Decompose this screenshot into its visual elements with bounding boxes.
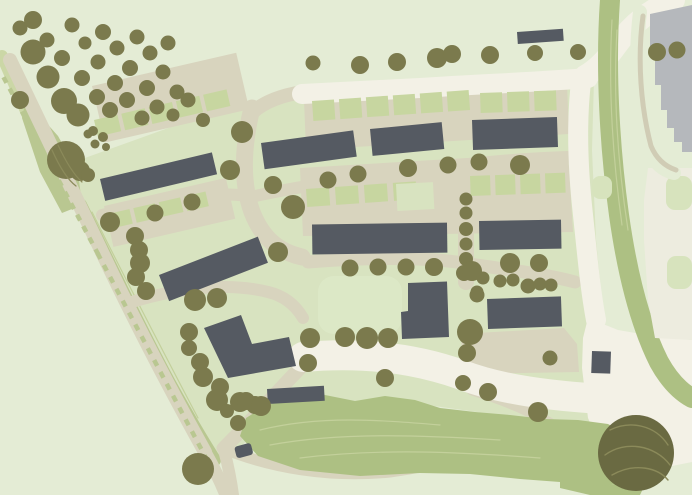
tree <box>196 113 210 127</box>
tree <box>545 279 558 292</box>
tree <box>91 55 106 70</box>
tree <box>425 258 443 276</box>
tree <box>494 275 507 288</box>
green-patches-shape <box>396 182 434 211</box>
tree <box>481 46 499 64</box>
tree <box>440 157 457 174</box>
tree <box>137 282 155 300</box>
tree <box>507 274 520 287</box>
tree <box>220 160 240 180</box>
tree <box>122 60 138 76</box>
tree <box>184 289 206 311</box>
garden-plot <box>366 96 389 117</box>
tree <box>527 45 543 61</box>
masterplan-site-map <box>0 0 692 495</box>
tree <box>182 453 214 485</box>
tree <box>356 327 378 349</box>
garden-plot <box>393 94 416 115</box>
tree <box>570 44 586 60</box>
garden-plot <box>480 92 503 113</box>
building-notched-center <box>401 282 449 340</box>
garden-plot <box>420 92 443 113</box>
green-patches-shape <box>592 176 612 199</box>
garden-plot <box>312 99 335 120</box>
garden-plot <box>447 90 470 111</box>
garden-plot <box>335 185 359 205</box>
tree <box>669 42 686 59</box>
tree <box>107 75 123 91</box>
tree <box>350 166 367 183</box>
tree <box>231 121 253 143</box>
tree <box>370 259 387 276</box>
tree <box>510 155 530 175</box>
tree <box>530 254 548 272</box>
tree <box>376 369 394 387</box>
tree <box>460 238 473 251</box>
building-row-n3 <box>472 117 558 150</box>
tree <box>220 404 234 418</box>
tree <box>268 242 288 262</box>
tree <box>351 56 369 74</box>
tree <box>161 36 176 51</box>
tree <box>521 279 536 294</box>
tree <box>477 272 490 285</box>
tree <box>299 354 317 372</box>
tree <box>378 328 398 348</box>
large-sketched-tree-se <box>598 415 674 491</box>
tree <box>89 89 105 105</box>
tree <box>156 65 171 80</box>
tree <box>84 130 93 139</box>
tree <box>24 11 42 29</box>
garden-plot <box>364 183 388 203</box>
tree <box>528 402 548 422</box>
tree <box>534 278 547 291</box>
tree <box>281 195 305 219</box>
tree <box>98 132 108 142</box>
tree <box>342 260 359 277</box>
garden-plot <box>339 98 362 119</box>
building-low-e <box>487 296 562 329</box>
tree <box>119 92 135 108</box>
tree <box>135 111 150 126</box>
tree <box>150 100 165 115</box>
site-plan-screenshot <box>0 0 692 495</box>
garden-plot <box>495 174 516 195</box>
tree <box>21 40 46 65</box>
tree <box>479 383 497 401</box>
garden-plot <box>507 91 530 112</box>
tree <box>143 46 158 61</box>
tree <box>458 344 476 362</box>
tree <box>398 259 415 276</box>
tree <box>300 328 320 348</box>
green-patches-shape <box>318 276 402 334</box>
tree <box>230 415 246 431</box>
tree <box>102 143 110 151</box>
tree <box>81 168 95 182</box>
garden-plot <box>520 174 541 195</box>
tree <box>67 104 90 127</box>
garden-plot <box>306 187 330 207</box>
tree <box>306 56 321 71</box>
tree <box>460 193 473 206</box>
tree <box>648 43 666 61</box>
tree <box>320 172 337 189</box>
tree <box>264 176 282 194</box>
tree <box>471 154 488 171</box>
tree <box>443 45 461 63</box>
tree <box>181 340 197 356</box>
tree <box>471 286 484 299</box>
green-patches-shape <box>667 256 692 289</box>
tree <box>388 53 406 71</box>
tree <box>500 253 520 273</box>
garden-plot <box>470 175 491 196</box>
tree <box>184 194 201 211</box>
tree <box>37 66 60 89</box>
tree <box>65 18 80 33</box>
tree <box>74 70 90 86</box>
tree <box>139 80 155 96</box>
tree <box>251 396 271 416</box>
garden-plot <box>545 173 566 194</box>
tree <box>460 207 473 220</box>
green-patches-shape <box>666 176 692 210</box>
tree <box>167 109 180 122</box>
garden-plot <box>534 90 557 111</box>
tree <box>193 367 213 387</box>
tree <box>79 37 92 50</box>
building-small-se <box>591 351 611 374</box>
tree <box>102 102 118 118</box>
tree <box>335 327 355 347</box>
tree <box>110 41 125 56</box>
tree <box>399 159 417 177</box>
tree <box>459 222 473 236</box>
tree <box>207 288 227 308</box>
building-central-long <box>312 223 447 255</box>
tree <box>91 140 100 149</box>
tree <box>455 375 471 391</box>
tree <box>147 205 164 222</box>
tree <box>11 91 29 109</box>
tree <box>180 323 198 341</box>
tree <box>543 351 558 366</box>
tree <box>95 24 111 40</box>
tree <box>54 50 70 66</box>
tree <box>100 212 120 232</box>
tree <box>130 30 145 45</box>
tree <box>457 319 483 345</box>
building-mid-e <box>479 220 561 250</box>
tree <box>181 93 196 108</box>
